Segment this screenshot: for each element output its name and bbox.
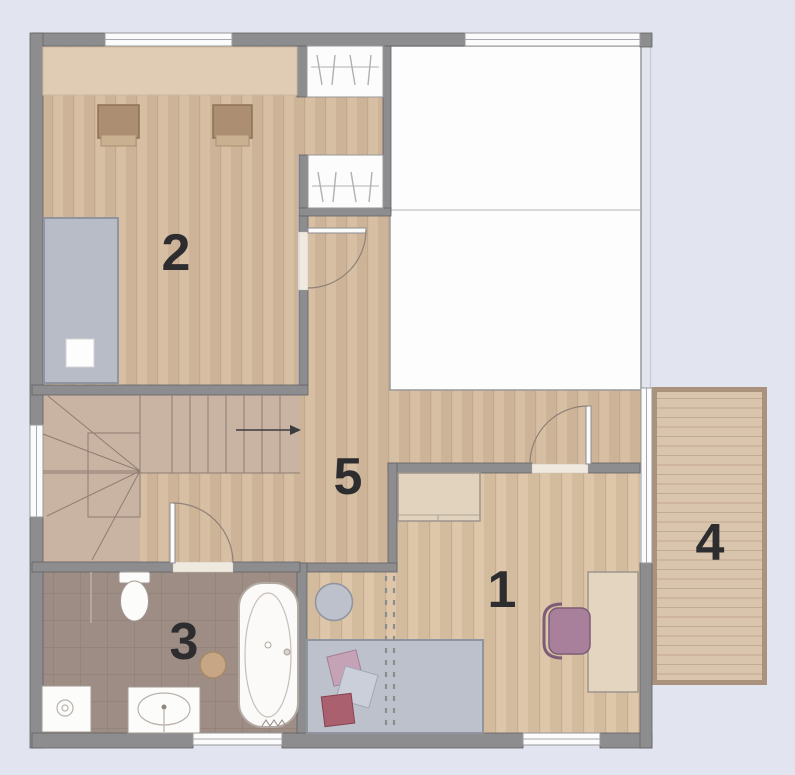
desk bbox=[588, 572, 638, 692]
window bbox=[30, 425, 43, 517]
washing-machine-icon bbox=[42, 686, 91, 732]
wall-segment bbox=[32, 733, 193, 748]
wall-segment bbox=[282, 733, 523, 748]
wall-segment bbox=[300, 563, 397, 572]
bathtub-icon bbox=[239, 583, 298, 727]
side-table bbox=[316, 584, 353, 621]
room-label-4: 4 bbox=[696, 514, 725, 572]
void-area bbox=[390, 46, 651, 390]
wall-segment bbox=[388, 463, 532, 473]
wall-segment bbox=[32, 562, 173, 572]
bathroom-stool bbox=[200, 652, 226, 678]
wall-segment bbox=[232, 33, 465, 46]
wardrobe bbox=[398, 473, 480, 521]
wall-segment bbox=[233, 562, 300, 572]
room-label-2: 2 bbox=[162, 224, 191, 282]
wall-segment bbox=[588, 463, 640, 473]
sink-icon bbox=[128, 687, 200, 733]
wall-segment bbox=[388, 463, 397, 570]
daybed bbox=[44, 218, 118, 383]
room-label-3: 3 bbox=[170, 613, 199, 671]
window bbox=[641, 388, 652, 563]
desk-chair bbox=[544, 604, 590, 658]
closet-1 bbox=[307, 46, 383, 97]
wall-segment bbox=[299, 216, 308, 232]
wall-segment bbox=[299, 290, 308, 385]
pillow bbox=[321, 693, 354, 726]
window bbox=[523, 733, 600, 745]
window bbox=[105, 33, 232, 46]
wall-segment bbox=[297, 46, 307, 97]
wall-segment bbox=[640, 33, 652, 47]
floor-plan-canvas: 1 2 3 4 5 bbox=[0, 0, 795, 775]
void-area-outline bbox=[390, 46, 641, 390]
window bbox=[193, 733, 282, 745]
closet-2 bbox=[308, 155, 383, 208]
wall-segment bbox=[32, 385, 308, 395]
window bbox=[465, 33, 640, 46]
wall-segment bbox=[30, 517, 43, 748]
floor-plan: 1 2 3 4 5 bbox=[0, 0, 795, 775]
wall-segment bbox=[383, 46, 391, 213]
hallway-floor bbox=[390, 388, 641, 465]
closet-nook-floor bbox=[298, 97, 383, 155]
room-2-stool bbox=[213, 105, 252, 146]
wall-segment bbox=[299, 208, 391, 216]
room-2-desk bbox=[43, 47, 297, 95]
wall-segment bbox=[640, 563, 652, 748]
daybed-pillow bbox=[66, 339, 94, 367]
room-label-5: 5 bbox=[334, 448, 363, 506]
corridor-floor bbox=[308, 213, 390, 465]
closet-1-outline bbox=[307, 46, 383, 97]
room-label-1: 1 bbox=[488, 561, 517, 619]
wall-segment bbox=[299, 155, 308, 208]
toilet-icon bbox=[119, 572, 150, 621]
wall-segment bbox=[30, 33, 43, 425]
room-2-stool bbox=[98, 105, 139, 146]
